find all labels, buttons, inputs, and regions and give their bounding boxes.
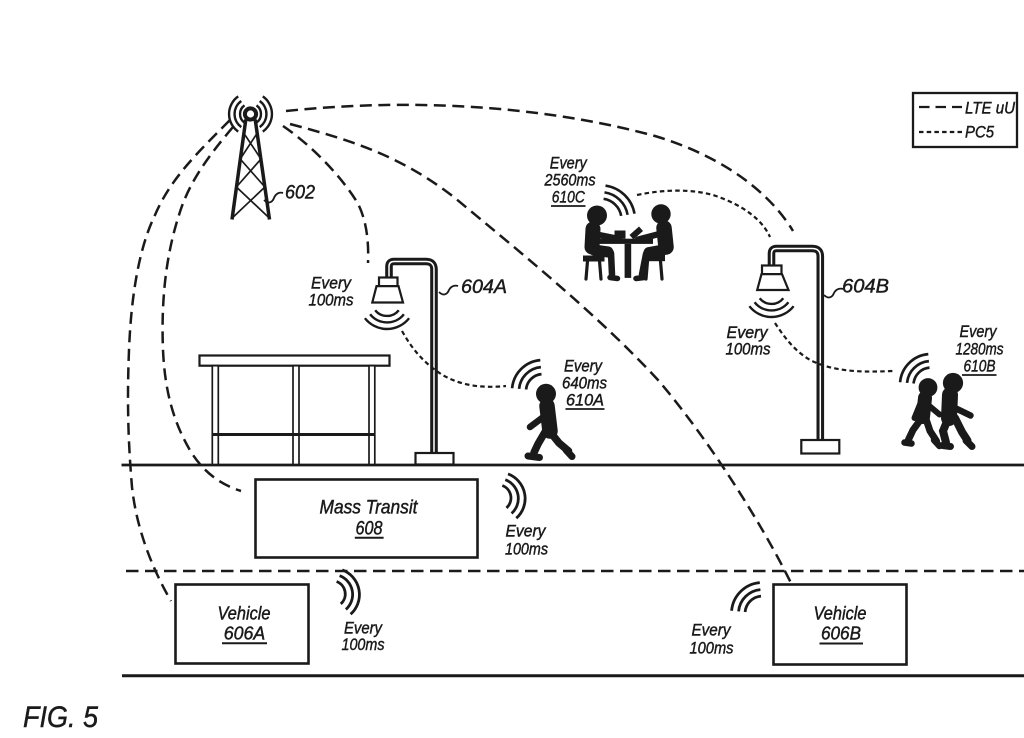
svg-text:606A: 606A [224,623,266,644]
svg-text:100ms: 100ms [726,340,771,359]
svg-text:FIG. 5: FIG. 5 [23,701,98,734]
svg-text:610A: 610A [566,391,604,410]
svg-text:100ms: 100ms [309,291,354,310]
svg-text:610B: 610B [964,357,996,376]
svg-text:PC5: PC5 [965,123,994,142]
svg-text:610C: 610C [552,188,586,207]
svg-text:100ms: 100ms [342,635,385,654]
svg-text:100ms: 100ms [690,639,734,658]
svg-text:Vehicle: Vehicle [814,603,867,624]
svg-text:608: 608 [356,519,383,540]
svg-text:602: 602 [285,183,315,204]
svg-text:100ms: 100ms [505,540,548,559]
svg-text:Every: Every [960,322,998,341]
svg-text:Every: Every [506,522,547,541]
svg-text:Mass Transit: Mass Transit [320,498,419,519]
svg-text:606B: 606B [821,623,861,644]
svg-text:604A: 604A [461,277,507,298]
svg-text:LTE uU: LTE uU [965,99,1016,118]
svg-text:Vehicle: Vehicle [218,603,271,624]
svg-text:Every: Every [692,621,732,640]
svg-text:604B: 604B [842,277,889,298]
